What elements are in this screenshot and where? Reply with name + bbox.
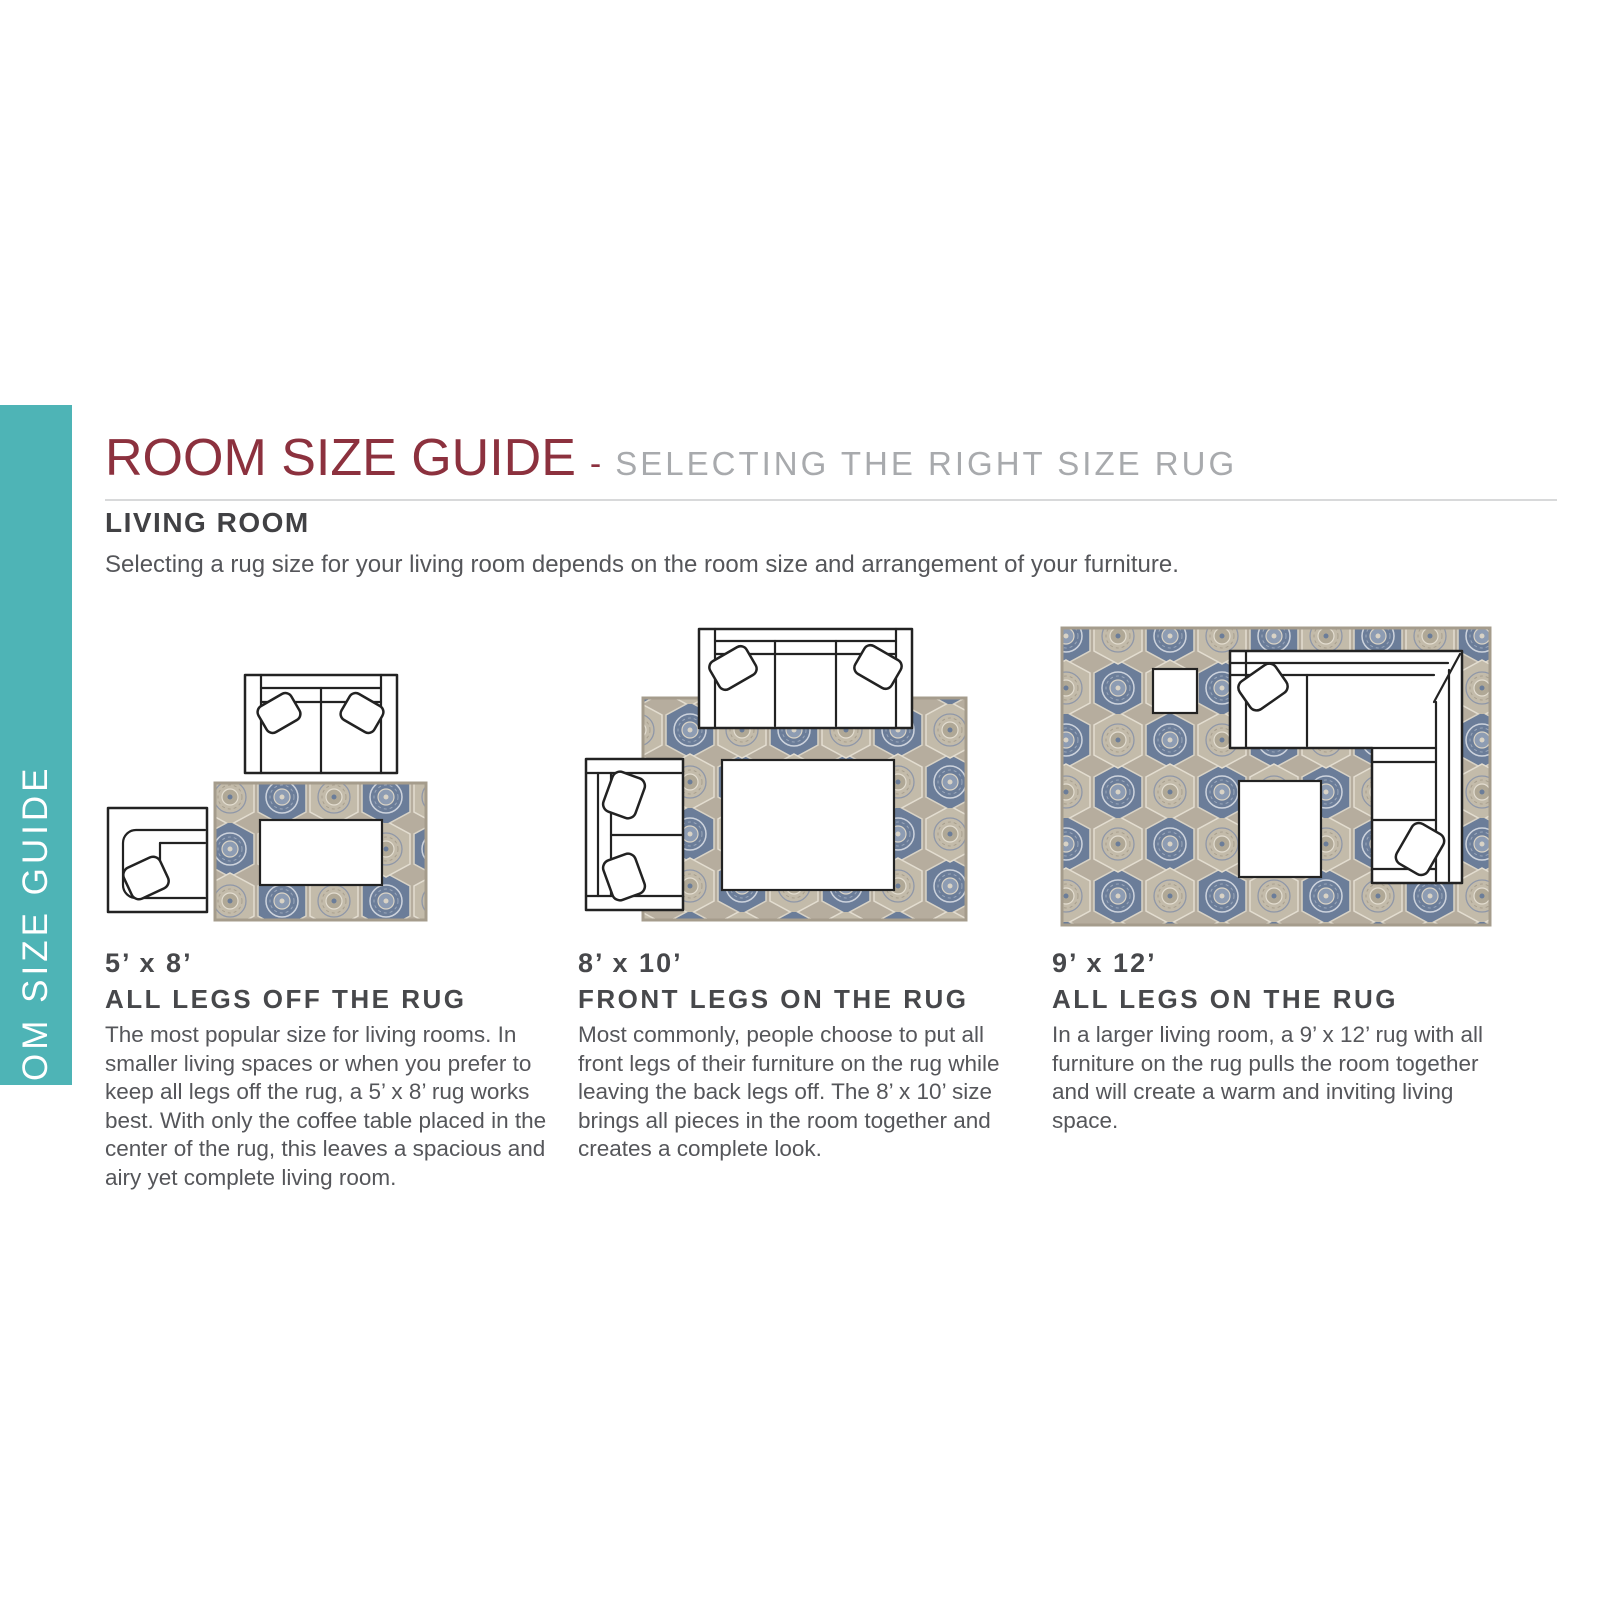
armchair-top-view <box>108 808 207 912</box>
loveseat-top-view-rotated <box>586 759 683 910</box>
sidebar-banner: ROOM SIZE GUIDE <box>0 405 72 1085</box>
guide-size-label: 5’ x 8’ <box>105 948 565 979</box>
guide-rule-label: ALL LEGS ON THE RUG <box>1052 984 1502 1015</box>
guide-5x8: 5’ x 8’ ALL LEGS OFF THE RUG The most po… <box>105 948 565 1192</box>
diagram-8x10 <box>560 600 980 925</box>
section-heading: LIVING ROOM <box>105 507 310 539</box>
coffee-table <box>722 760 894 890</box>
header: ROOM SIZE GUIDE - SELECTING THE RIGHT SI… <box>105 428 1557 488</box>
guide-rule-label: FRONT LEGS ON THE RUG <box>578 984 1008 1015</box>
coffee-table <box>260 820 382 885</box>
guide-size-label: 8’ x 10’ <box>578 948 1008 979</box>
guide-paragraph: Most commonly, people choose to put all … <box>578 1021 1008 1164</box>
page-title: ROOM SIZE GUIDE <box>105 428 576 488</box>
coffee-table <box>1239 781 1321 877</box>
guide-9x12: 9’ x 12’ ALL LEGS ON THE RUG In a larger… <box>1052 948 1502 1135</box>
header-divider <box>105 499 1557 501</box>
guide-paragraph: The most popular size for living rooms. … <box>105 1021 565 1192</box>
guide-paragraph: In a larger living room, a 9’ x 12’ rug … <box>1052 1021 1502 1135</box>
section-description: Selecting a rug size for your living roo… <box>105 551 1179 579</box>
guide-8x10: 8’ x 10’ FRONT LEGS ON THE RUG Most comm… <box>578 948 1008 1164</box>
room-size-guide-page: ROOM SIZE GUIDE ROOM SIZE GUIDE - SELECT… <box>0 0 1599 1599</box>
sofa-top-view <box>699 629 912 728</box>
title-separator: - <box>590 445 601 484</box>
diagram-9x12 <box>1040 610 1500 930</box>
sidebar-vertical-label: ROOM SIZE GUIDE <box>16 765 56 1142</box>
page-subtitle: SELECTING THE RIGHT SIZE RUG <box>615 445 1237 483</box>
guide-size-label: 9’ x 12’ <box>1052 948 1502 979</box>
diagram-5x8 <box>100 615 440 925</box>
side-table <box>1153 669 1197 713</box>
guide-rule-label: ALL LEGS OFF THE RUG <box>105 984 565 1015</box>
loveseat-top-view <box>245 675 397 773</box>
